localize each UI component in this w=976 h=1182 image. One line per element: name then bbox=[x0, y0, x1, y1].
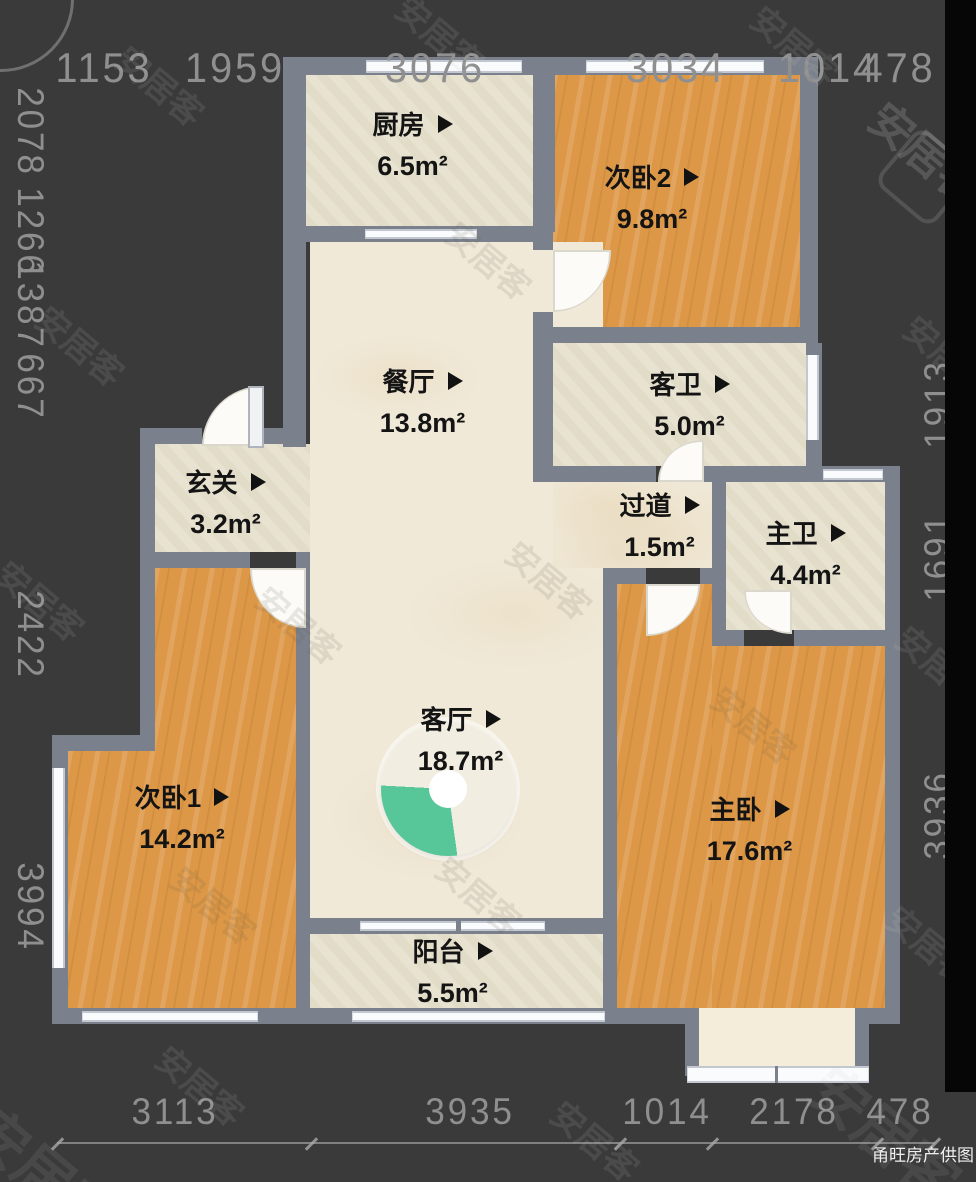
room-label-living: 客厅 18.7m² bbox=[383, 700, 538, 777]
room-label-bedroom2: 次卧2 9.8m² bbox=[572, 158, 732, 235]
room-arrow-icon bbox=[486, 710, 501, 728]
wall-segment bbox=[700, 568, 712, 584]
wall-segment bbox=[264, 428, 306, 444]
room-area: 17.6m² bbox=[707, 836, 793, 867]
dimension-label: 2078 bbox=[9, 87, 51, 177]
room-arrow-icon bbox=[715, 375, 730, 393]
wall-segment bbox=[800, 57, 818, 343]
room-label-balcony: 阳台 5.5m² bbox=[375, 932, 530, 1009]
room-name: 阳台 bbox=[412, 932, 464, 969]
dimension-label: 667 bbox=[9, 353, 51, 420]
room-label-dining: 餐厅 13.8m² bbox=[345, 362, 500, 439]
watermark-text-large: 安居客 bbox=[0, 1084, 141, 1182]
room-arrow-icon bbox=[684, 168, 699, 186]
window bbox=[806, 355, 819, 440]
room-label-bedroom1: 次卧1 14.2m² bbox=[102, 778, 262, 855]
window-mullion bbox=[456, 921, 461, 931]
room-arrow-icon bbox=[438, 115, 453, 133]
room-label-kitchen: 厨房 6.5m² bbox=[335, 105, 490, 182]
wall-segment bbox=[704, 466, 712, 482]
room-arrow-icon bbox=[251, 473, 266, 491]
window-mullion bbox=[775, 1066, 778, 1083]
room-area: 13.8m² bbox=[380, 408, 466, 439]
room-area: 3.2m² bbox=[190, 509, 261, 540]
wall-segment bbox=[140, 552, 250, 568]
wall-segment bbox=[603, 568, 617, 1008]
dimension-tick bbox=[614, 1137, 627, 1150]
wall-segment bbox=[533, 466, 656, 482]
bay-window-floor bbox=[699, 1008, 855, 1068]
room-arrow-icon bbox=[478, 942, 493, 960]
image-edge-strip bbox=[945, 0, 976, 1092]
window bbox=[82, 1011, 258, 1022]
room-label-guestbath: 客卫 5.0m² bbox=[612, 365, 767, 442]
room-area: 14.2m² bbox=[139, 824, 225, 855]
room-arrow-icon bbox=[448, 372, 463, 390]
room-arrow-icon bbox=[775, 800, 790, 818]
dimension-label: 2178 bbox=[749, 1091, 839, 1133]
wall-segment bbox=[533, 57, 555, 232]
dimension-label: 478 bbox=[866, 1091, 933, 1133]
dimension-label: 1153 bbox=[55, 44, 152, 92]
room-area: 9.8m² bbox=[617, 204, 688, 235]
room-area: 6.5m² bbox=[377, 151, 448, 182]
room-arrow-icon bbox=[214, 788, 229, 806]
window bbox=[365, 229, 477, 239]
window bbox=[687, 1066, 869, 1083]
dimension-label: 1014 bbox=[622, 1091, 712, 1133]
room-area: 1.5m² bbox=[624, 532, 695, 563]
dimension-label: 2422 bbox=[9, 590, 51, 680]
room-arrow-icon bbox=[685, 496, 700, 514]
room-name: 客厅 bbox=[420, 700, 472, 737]
window bbox=[352, 1011, 605, 1022]
floorplan-image: 厨房 6.5m² 次卧2 9.8m² 餐厅 13.8m² 客卫 5.0m² 玄关… bbox=[0, 0, 976, 1182]
dimension-label: 1387 bbox=[9, 260, 51, 350]
wall-segment bbox=[603, 1008, 697, 1024]
room-name: 主卧 bbox=[709, 790, 761, 827]
wall-segment bbox=[712, 630, 744, 646]
room-area: 18.7m² bbox=[418, 746, 504, 777]
room-name: 次卧1 bbox=[135, 778, 201, 815]
room-name: 厨房 bbox=[372, 105, 424, 142]
room-area: 4.4m² bbox=[770, 560, 841, 591]
room-label-master: 主卧 17.6m² bbox=[672, 790, 827, 867]
window bbox=[360, 921, 545, 931]
room-name: 主卫 bbox=[765, 514, 817, 551]
room-name: 客卫 bbox=[649, 365, 701, 402]
dimension-label: 3113 bbox=[132, 1091, 219, 1133]
room-name: 玄关 bbox=[185, 463, 237, 500]
room-area: 5.5m² bbox=[417, 978, 488, 1009]
wall-segment bbox=[617, 568, 646, 584]
dimension-label: 3935 bbox=[425, 1091, 515, 1133]
wall-segment bbox=[794, 630, 900, 646]
room-label-hallway: 过道 1.5m² bbox=[582, 486, 737, 563]
dimension-label: 3076 bbox=[385, 44, 485, 92]
room-label-masterbath: 主卫 4.4m² bbox=[728, 514, 883, 591]
provider-credit: 甬旺房产供图 bbox=[872, 1141, 974, 1166]
room-arrow-icon bbox=[831, 524, 846, 542]
wall-segment bbox=[533, 343, 553, 482]
wall-segment bbox=[885, 646, 900, 1008]
dimension-line bbox=[57, 1142, 935, 1144]
dimension-tick bbox=[706, 1137, 719, 1150]
wall-segment bbox=[533, 232, 553, 250]
dimension-tick bbox=[305, 1137, 318, 1150]
entrance-door-leaf bbox=[248, 386, 264, 448]
dimension-label: 478 bbox=[860, 44, 935, 92]
window bbox=[823, 469, 883, 480]
wall-segment bbox=[885, 466, 900, 646]
dimension-label: 3034 bbox=[626, 44, 726, 92]
dimension-tick bbox=[51, 1137, 64, 1150]
dimension-label: 1959 bbox=[185, 44, 285, 92]
room-label-foyer: 玄关 3.2m² bbox=[148, 463, 303, 540]
room-name: 过道 bbox=[619, 486, 671, 523]
wall-segment bbox=[283, 57, 306, 447]
wall-segment bbox=[140, 568, 155, 748]
dimension-label: 3994 bbox=[9, 862, 51, 952]
room-name: 次卧2 bbox=[605, 158, 671, 195]
wall-segment bbox=[533, 327, 818, 343]
room-area: 5.0m² bbox=[654, 411, 725, 442]
room-name: 餐厅 bbox=[382, 362, 434, 399]
window bbox=[52, 768, 65, 968]
